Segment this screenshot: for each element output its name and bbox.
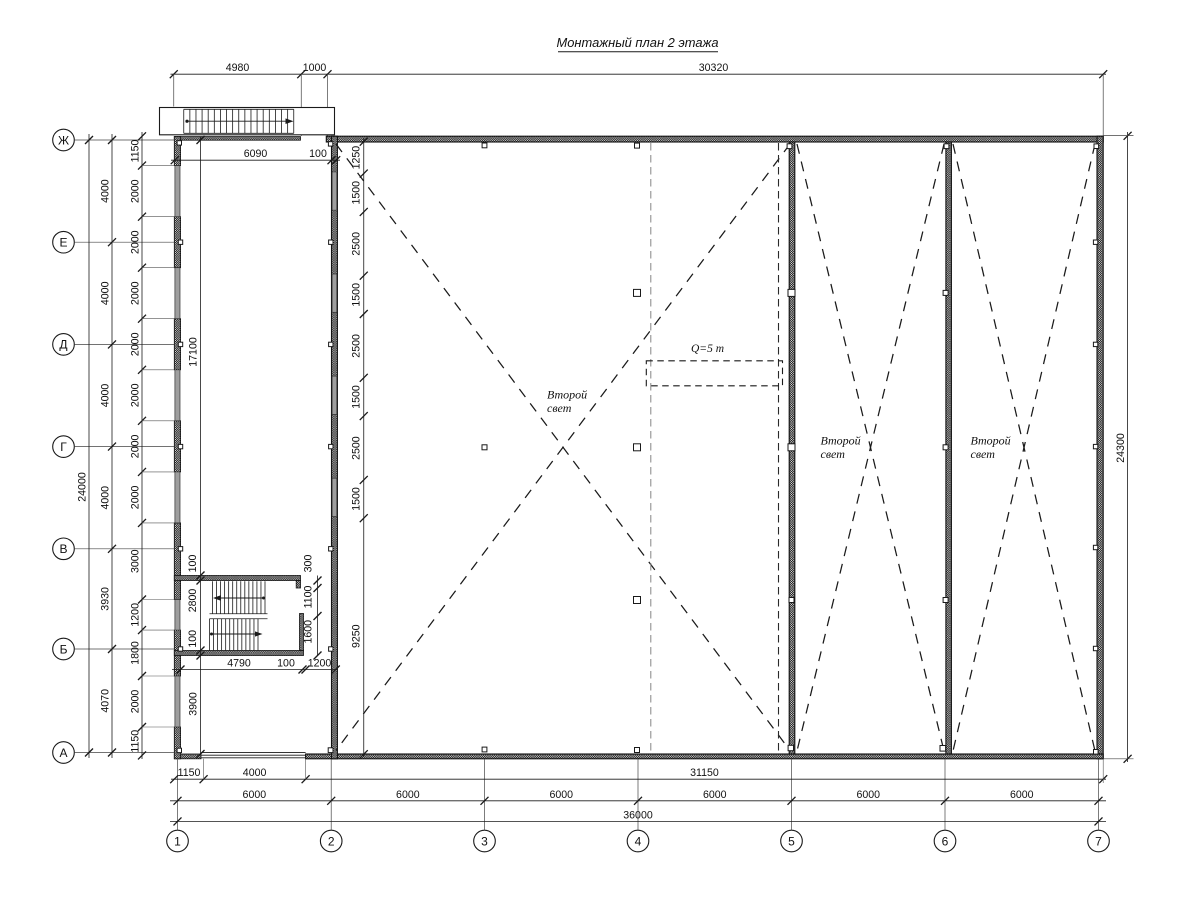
svg-text:9250: 9250 — [351, 624, 363, 648]
svg-text:6090: 6090 — [244, 148, 268, 160]
svg-text:Второй: Второй — [971, 434, 1011, 448]
svg-text:Q=5 т: Q=5 т — [691, 343, 724, 355]
svg-text:1150: 1150 — [130, 140, 142, 163]
svg-text:6000: 6000 — [856, 789, 880, 801]
svg-text:4000: 4000 — [243, 767, 267, 779]
svg-text:Ж: Ж — [58, 133, 69, 147]
svg-text:4: 4 — [635, 834, 642, 848]
svg-text:6000: 6000 — [703, 789, 727, 801]
svg-text:36000: 36000 — [623, 809, 653, 821]
svg-text:свет: свет — [547, 401, 572, 415]
svg-text:1150: 1150 — [130, 730, 142, 753]
svg-text:4000: 4000 — [100, 486, 112, 510]
svg-text:3930: 3930 — [100, 587, 112, 611]
svg-text:7: 7 — [1095, 834, 1102, 848]
svg-text:100: 100 — [309, 148, 327, 160]
svg-text:6000: 6000 — [549, 789, 573, 801]
svg-text:В: В — [59, 542, 67, 556]
svg-text:2000: 2000 — [130, 332, 142, 356]
svg-text:Д: Д — [59, 338, 67, 352]
svg-text:4000: 4000 — [100, 281, 112, 305]
svg-text:3000: 3000 — [130, 549, 142, 573]
svg-text:1150: 1150 — [178, 767, 201, 779]
svg-text:Б: Б — [60, 642, 68, 656]
svg-text:свет: свет — [971, 447, 996, 461]
svg-text:17100: 17100 — [188, 337, 200, 367]
svg-text:300: 300 — [303, 555, 315, 573]
svg-text:1: 1 — [174, 834, 181, 848]
svg-text:5: 5 — [788, 834, 795, 848]
svg-text:100: 100 — [187, 630, 199, 648]
svg-text:1200: 1200 — [130, 603, 142, 627]
svg-text:1000: 1000 — [303, 62, 327, 74]
svg-text:6000: 6000 — [396, 789, 420, 801]
svg-text:4000: 4000 — [100, 179, 112, 203]
svg-text:2500: 2500 — [351, 334, 363, 358]
svg-text:Второй: Второй — [547, 388, 587, 402]
svg-text:2000: 2000 — [130, 435, 142, 459]
svg-text:1600: 1600 — [303, 620, 315, 644]
svg-text:1500: 1500 — [351, 487, 363, 511]
svg-text:Второй: Второй — [821, 434, 861, 448]
svg-text:2000: 2000 — [130, 383, 142, 407]
svg-text:6000: 6000 — [243, 789, 267, 801]
svg-text:6000: 6000 — [1010, 789, 1034, 801]
svg-text:4980: 4980 — [226, 62, 250, 74]
svg-text:3: 3 — [481, 834, 488, 848]
svg-text:4000: 4000 — [100, 384, 112, 408]
svg-text:1200: 1200 — [308, 658, 332, 670]
svg-text:3900: 3900 — [188, 692, 200, 716]
svg-text:2500: 2500 — [351, 232, 363, 256]
svg-text:31150: 31150 — [690, 767, 719, 779]
svg-text:2000: 2000 — [130, 281, 142, 305]
svg-text:1250: 1250 — [351, 146, 363, 170]
svg-text:2000: 2000 — [130, 179, 142, 203]
svg-text:2000: 2000 — [130, 230, 142, 254]
svg-text:2500: 2500 — [351, 436, 363, 460]
svg-text:24000: 24000 — [77, 472, 89, 502]
svg-text:6: 6 — [942, 834, 949, 848]
svg-text:2: 2 — [328, 834, 335, 848]
svg-text:1100: 1100 — [303, 586, 315, 609]
svg-text:свет: свет — [821, 447, 846, 461]
svg-text:100: 100 — [187, 555, 199, 573]
svg-text:А: А — [59, 746, 67, 760]
svg-text:100: 100 — [277, 658, 295, 670]
svg-text:4070: 4070 — [100, 689, 112, 713]
svg-text:Е: Е — [59, 236, 67, 250]
svg-text:Г: Г — [60, 440, 67, 454]
svg-text:2000: 2000 — [130, 486, 142, 510]
svg-text:Монтажный план 2 этажа: Монтажный план 2 этажа — [556, 35, 718, 50]
svg-text:24300: 24300 — [1115, 433, 1127, 463]
svg-text:2000: 2000 — [130, 690, 142, 714]
svg-text:1500: 1500 — [351, 385, 363, 409]
svg-text:1500: 1500 — [351, 283, 363, 307]
svg-text:30320: 30320 — [699, 62, 729, 74]
svg-text:1800: 1800 — [130, 641, 142, 665]
svg-text:1500: 1500 — [351, 181, 363, 205]
svg-text:2800: 2800 — [187, 589, 199, 613]
svg-text:4790: 4790 — [227, 658, 251, 670]
